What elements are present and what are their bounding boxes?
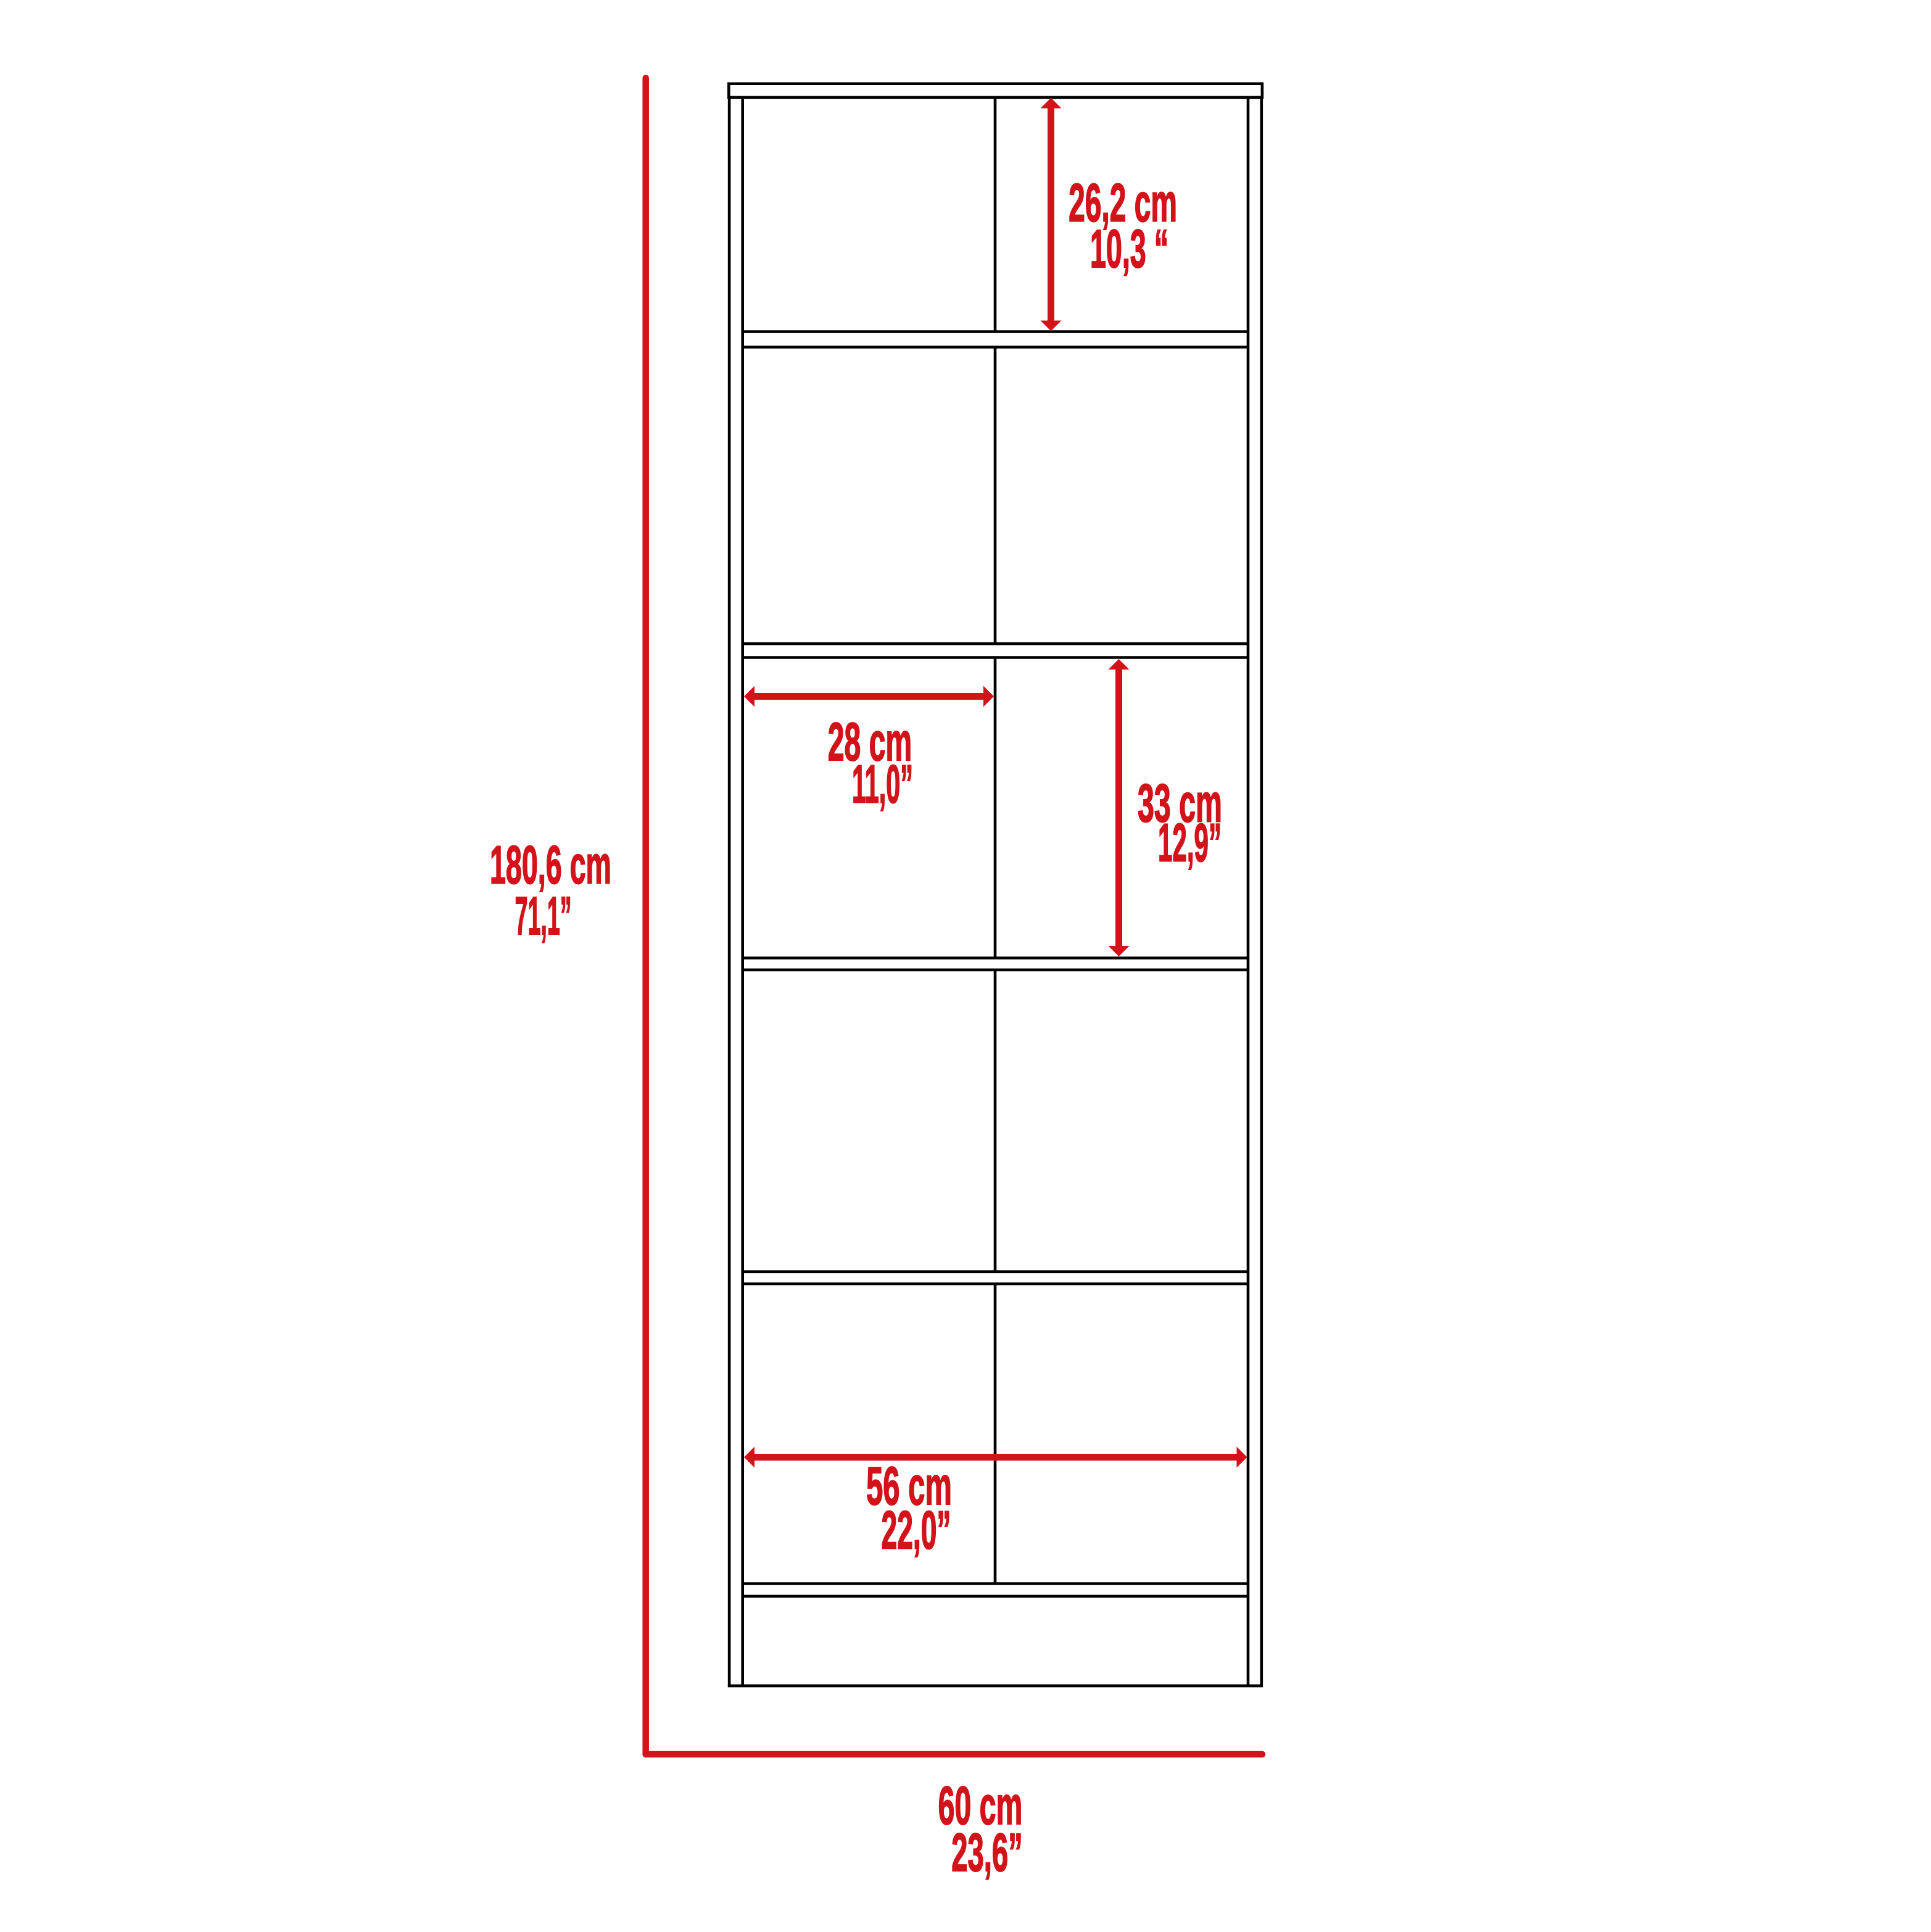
svg-text:71,1”: 71,1” [515, 886, 572, 946]
svg-text:12,9”: 12,9” [1158, 813, 1222, 873]
svg-text:11,0”: 11,0” [852, 755, 913, 815]
svg-text:10,3 “: 10,3 “ [1090, 218, 1168, 278]
svg-text:23,6”: 23,6” [951, 1823, 1023, 1883]
svg-text:22,0”: 22,0” [882, 1500, 951, 1560]
